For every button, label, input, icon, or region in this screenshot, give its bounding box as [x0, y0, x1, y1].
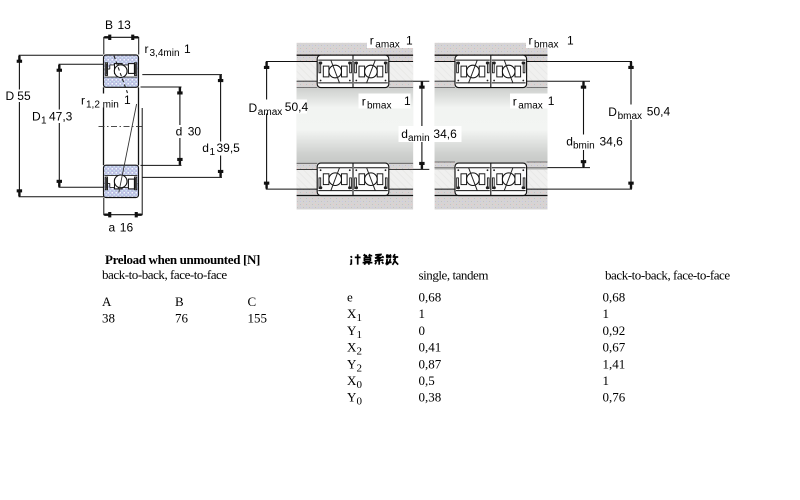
svg-text:34,6: 34,6 [600, 135, 624, 149]
svg-text:39,5: 39,5 [217, 141, 241, 155]
svg-text:1: 1 [41, 115, 47, 126]
svg-text:a: a [109, 221, 116, 235]
svg-text:Y: Y [347, 323, 357, 338]
svg-text:C: C [248, 294, 257, 309]
svg-text:X: X [347, 373, 357, 388]
svg-text:Y: Y [347, 390, 357, 405]
svg-text:0,41: 0,41 [419, 340, 442, 355]
svg-text:1: 1 [357, 329, 363, 341]
svg-text:amin: amin [408, 133, 430, 144]
svg-text:r: r [81, 94, 85, 108]
svg-text:bmax: bmax [534, 40, 558, 51]
svg-text:back-to-back, face-to-face: back-to-back, face-to-face [102, 267, 227, 282]
svg-text:1: 1 [357, 312, 363, 324]
svg-text:0,5: 0,5 [419, 373, 435, 388]
svg-text:D: D [32, 109, 41, 123]
svg-text:16: 16 [120, 221, 134, 235]
svg-text:0,68: 0,68 [419, 290, 442, 305]
svg-text:155: 155 [248, 311, 268, 326]
svg-text:bmin: bmin [573, 141, 595, 152]
svg-text:r: r [145, 42, 149, 56]
svg-text:single, tandem: single, tandem [419, 268, 489, 283]
svg-text:A: A [102, 294, 112, 309]
svg-text:r: r [370, 34, 374, 48]
svg-text:0: 0 [357, 396, 363, 408]
svg-text:50,4: 50,4 [285, 100, 309, 114]
svg-text:X: X [347, 340, 357, 355]
svg-text:2: 2 [357, 346, 363, 358]
svg-text:d: d [202, 141, 209, 155]
svg-text:amax: amax [375, 40, 399, 51]
svg-text:38: 38 [102, 311, 115, 326]
svg-text:0,92: 0,92 [603, 323, 626, 338]
svg-text:1: 1 [184, 42, 191, 56]
svg-text:bmax: bmax [367, 101, 391, 112]
svg-text:0: 0 [419, 323, 426, 338]
svg-text:1,41: 1,41 [603, 356, 626, 371]
svg-text:bmax: bmax [618, 111, 642, 122]
svg-text:0: 0 [357, 379, 363, 391]
svg-text:1: 1 [124, 93, 131, 107]
svg-text:0,38: 0,38 [419, 390, 442, 405]
svg-text:D: D [6, 89, 15, 103]
svg-text:back-to-back, face-to-face: back-to-back, face-to-face [605, 268, 730, 283]
svg-text:76: 76 [175, 311, 189, 326]
svg-text:3,4min: 3,4min [150, 48, 180, 59]
svg-text:1: 1 [603, 306, 610, 321]
svg-text:0,76: 0,76 [603, 390, 626, 405]
svg-text:B: B [105, 18, 113, 32]
svg-text:r: r [362, 95, 366, 109]
svg-text:r: r [529, 34, 533, 48]
svg-text:e: e [347, 290, 353, 305]
svg-text:0,87: 0,87 [419, 356, 442, 371]
svg-text:55: 55 [17, 89, 31, 103]
svg-text:Y: Y [347, 356, 357, 371]
svg-text:amax: amax [518, 101, 542, 112]
svg-text:50,4: 50,4 [647, 104, 671, 118]
svg-text:1: 1 [548, 94, 555, 108]
svg-text:d: d [566, 135, 573, 149]
svg-text:D: D [249, 101, 258, 115]
svg-text:D: D [608, 105, 617, 119]
svg-text:13: 13 [118, 18, 132, 32]
svg-text:30: 30 [188, 125, 202, 139]
svg-text:d: d [176, 125, 183, 139]
svg-text:0,67: 0,67 [603, 340, 626, 355]
svg-text:1: 1 [404, 94, 411, 108]
svg-text:B: B [175, 294, 184, 309]
svg-text:34,6: 34,6 [433, 127, 457, 141]
svg-text:d: d [401, 127, 408, 141]
svg-text:amax: amax [258, 107, 282, 118]
svg-text:47,3: 47,3 [49, 109, 73, 123]
svg-text:r: r [513, 95, 517, 109]
svg-text:1: 1 [419, 306, 426, 321]
svg-text:2: 2 [357, 362, 363, 374]
svg-text:1: 1 [406, 34, 413, 48]
svg-text:Preload when unmounted [N]: Preload when unmounted [N] [105, 252, 260, 267]
svg-text:1: 1 [603, 373, 610, 388]
svg-text:1,2 min: 1,2 min [86, 100, 119, 111]
svg-text:X: X [347, 306, 357, 321]
svg-text:1: 1 [210, 147, 216, 158]
svg-text:0,68: 0,68 [603, 290, 626, 305]
svg-text:1: 1 [567, 34, 574, 48]
